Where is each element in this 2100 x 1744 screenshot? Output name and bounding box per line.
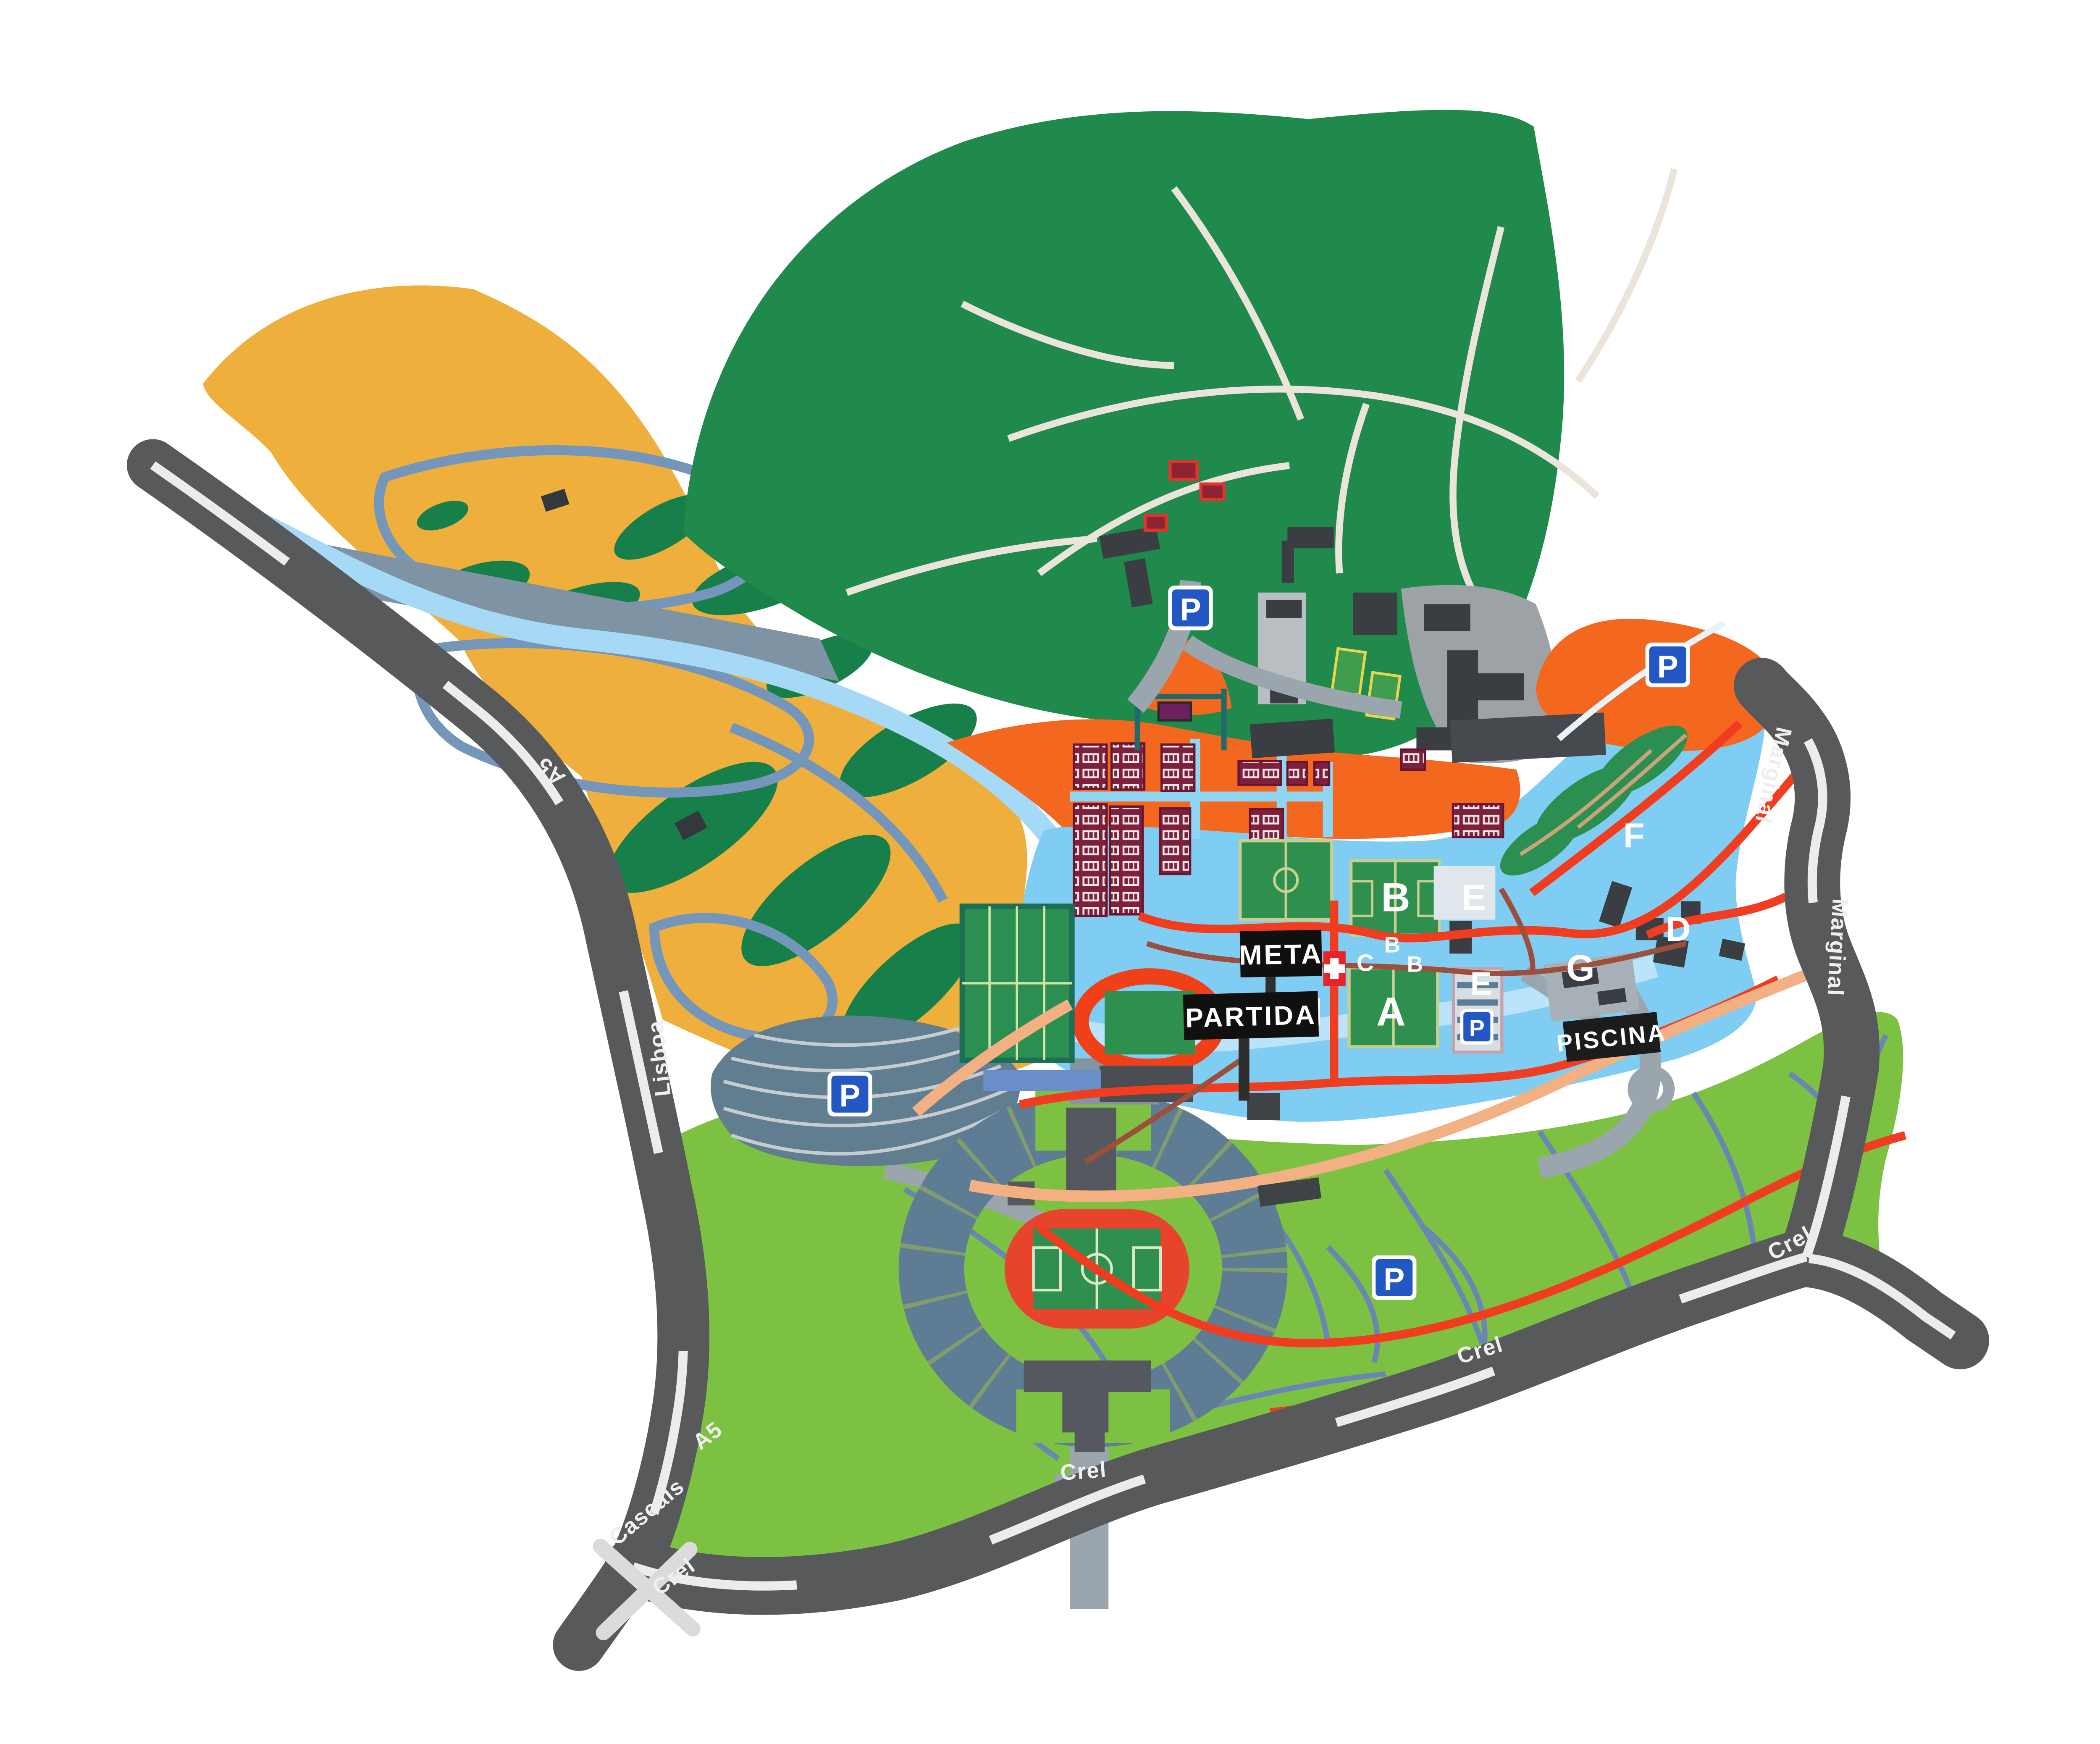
svg-text:P: P <box>839 1078 860 1113</box>
field-letter-b: B <box>1381 875 1410 920</box>
label-partida-text: PARTIDA <box>1185 1000 1317 1033</box>
field-letter-b-small1: B <box>1384 933 1400 958</box>
pad-building <box>1266 600 1302 618</box>
parking-sign-south: P <box>1372 1255 1416 1300</box>
field-letter-e-north: E <box>1462 877 1486 918</box>
road-label-crel-south: Crel <box>1060 1457 1108 1485</box>
first-aid-icon <box>1323 951 1346 986</box>
camp-dark-building <box>1250 719 1335 758</box>
field-letter-f: F <box>1623 816 1644 855</box>
field-letter-g: G <box>1566 948 1595 988</box>
parking-sign-north: P <box>1168 586 1213 630</box>
field-letter-d: D <box>1666 910 1691 948</box>
parking-sign-building-e: P <box>1460 1009 1494 1044</box>
road-label-marginal-east: Marginal <box>1823 898 1853 997</box>
field-letter-a: A <box>1376 990 1406 1035</box>
parking-sign-west: P <box>827 1072 872 1116</box>
svg-text:P: P <box>1469 1015 1485 1041</box>
svg-text:P: P <box>1180 592 1201 627</box>
football-field-nw <box>1240 841 1332 920</box>
field-letter-c: C <box>1357 950 1374 977</box>
svg-text:P: P <box>1383 1261 1404 1297</box>
camp-sign <box>1158 703 1191 720</box>
field-letter-e-south: E <box>1470 965 1492 1002</box>
tennis-stand <box>983 1070 1101 1091</box>
map-stage: A5 Lisboa A5 Cascais Crel Crel Crel Crel… <box>0 0 2100 1744</box>
parking-sign-northeast: P <box>1646 643 1690 687</box>
field-letter-b-small2: B <box>1407 952 1423 977</box>
jamor-sports-complex-map: A5 Lisboa A5 Cascais Crel Crel Crel Crel… <box>0 0 2100 1744</box>
svg-text:P: P <box>1657 649 1678 684</box>
label-partida-pole <box>1239 1035 1249 1101</box>
label-meta-text: META <box>1239 938 1323 970</box>
